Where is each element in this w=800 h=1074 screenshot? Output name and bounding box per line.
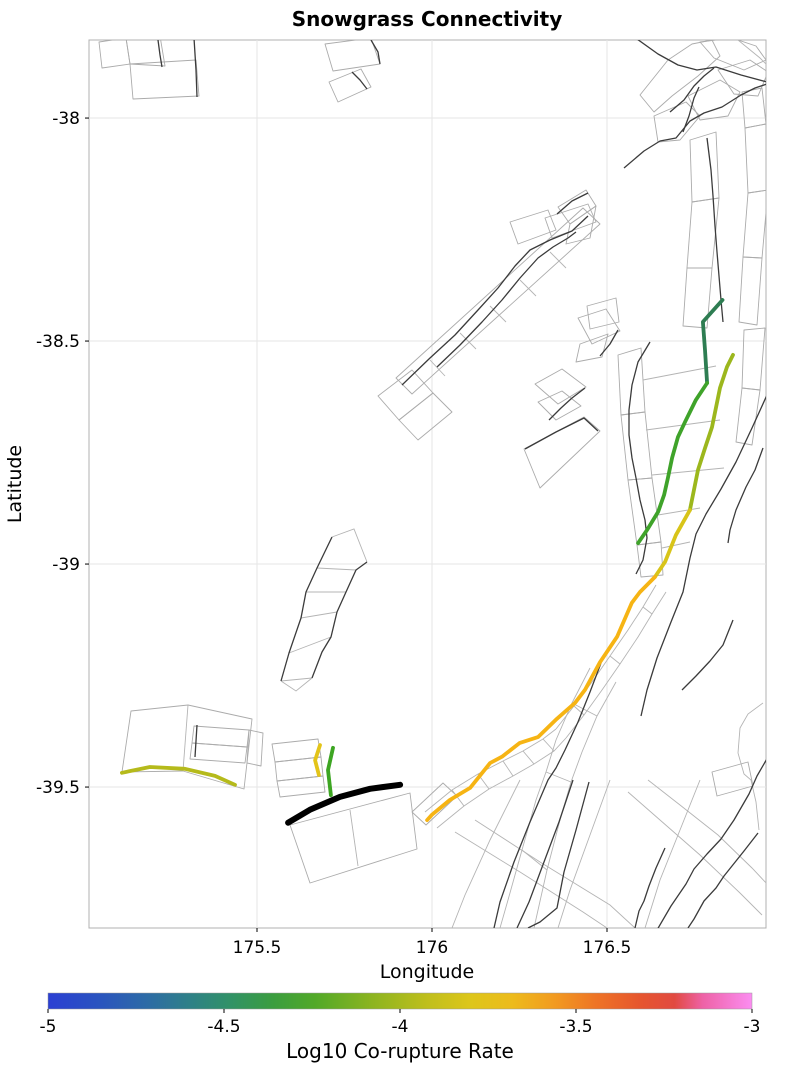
fault-patch-line bbox=[183, 705, 188, 771]
fault-patch-outline bbox=[190, 743, 247, 763]
fault-trace bbox=[624, 84, 767, 168]
fault-patch-line bbox=[301, 612, 337, 618]
rupture-segment-2a bbox=[690, 355, 733, 510]
snowgrass-fault-highlight bbox=[288, 785, 400, 823]
fault-patch-outline bbox=[576, 334, 608, 362]
fault-patch-outline bbox=[399, 393, 452, 440]
fault-patch-line bbox=[643, 607, 652, 614]
fault-trace bbox=[688, 833, 758, 928]
fault-trace bbox=[682, 620, 733, 690]
fault-trace bbox=[437, 232, 576, 367]
fault-trace bbox=[352, 72, 367, 89]
plot-area bbox=[89, 40, 766, 928]
fault-patch-outline bbox=[718, 60, 768, 96]
fault-patch-outline bbox=[535, 369, 586, 404]
fault-trace bbox=[195, 725, 197, 757]
fault-patch-outline bbox=[277, 776, 325, 797]
colorbar-gradient bbox=[48, 993, 752, 1009]
colorbar-tick-label: -4.5 bbox=[207, 1017, 240, 1037]
fault-patch-line bbox=[455, 832, 607, 928]
fault-patch-line bbox=[662, 542, 690, 548]
fault-trace bbox=[635, 848, 665, 928]
fault-patch-line bbox=[500, 668, 590, 928]
fault-patch-outline bbox=[325, 38, 380, 71]
fault-patch-line bbox=[738, 703, 763, 830]
fault-patch-outline bbox=[396, 208, 600, 394]
fault-patch-line bbox=[350, 810, 358, 866]
rupture-segment-2c bbox=[427, 577, 655, 820]
fault-patch-line bbox=[289, 637, 331, 653]
fault-patch-line bbox=[534, 682, 616, 928]
y-tick-label: -38.5 bbox=[36, 332, 80, 352]
x-tick-label: 175.5 bbox=[233, 938, 282, 958]
fault-patch-line bbox=[610, 656, 620, 664]
fault-patch-outline bbox=[524, 417, 600, 488]
fault-patch-outline bbox=[739, 257, 762, 325]
fault-trace bbox=[683, 87, 699, 132]
fault-patch-line bbox=[281, 678, 312, 681]
axis-ticks: 175.5176176.5-38-38.5-39-39.5 bbox=[36, 109, 631, 958]
colorbar-tick-label: -4 bbox=[392, 1017, 409, 1037]
colorbar-tick-label: -5 bbox=[40, 1017, 57, 1037]
colorbar-label: Log10 Co-rupture Rate bbox=[286, 1039, 514, 1063]
fault-map-layers bbox=[99, 36, 768, 930]
x-axis-label: Longitude bbox=[380, 961, 475, 983]
gridlines bbox=[89, 40, 766, 928]
fault-trace bbox=[728, 448, 763, 543]
colorbar-tick-label: -3.5 bbox=[559, 1017, 592, 1037]
fault-patch-outline bbox=[621, 412, 652, 480]
rupture-segment-4 bbox=[315, 745, 320, 775]
fault-patch-line bbox=[332, 529, 367, 562]
fault-trace bbox=[312, 562, 367, 678]
fault-patch-outline bbox=[690, 132, 719, 202]
fault-patch-line bbox=[490, 306, 506, 322]
y-tick-label: -38 bbox=[52, 109, 80, 129]
fault-patch-outline bbox=[745, 124, 768, 193]
y-tick-label: -39 bbox=[52, 555, 80, 575]
fault-patch-line bbox=[648, 780, 768, 885]
colorbar: -5-4.5-4-3.5-3 Log10 Co-rupture Rate bbox=[40, 993, 761, 1063]
fault-patch-outline bbox=[742, 328, 765, 390]
fault-trace bbox=[525, 418, 598, 449]
x-tick-label: 176.5 bbox=[583, 938, 632, 958]
fault-patch-line bbox=[523, 751, 534, 764]
fault-patch-outline bbox=[742, 88, 766, 128]
fault-patch-line bbox=[503, 761, 513, 776]
fault-patch-outline bbox=[290, 793, 417, 883]
colorbar-ticks: -5-4.5-4-3.5-3 bbox=[40, 1009, 761, 1037]
fault-patch-outline bbox=[99, 38, 130, 68]
fault-patch-line bbox=[317, 568, 356, 570]
x-tick-label: 176 bbox=[416, 938, 448, 958]
fault-trace bbox=[557, 193, 588, 214]
colorbar-tick-label: -3 bbox=[744, 1017, 761, 1037]
fault-patch-line bbox=[475, 820, 635, 928]
rupture-segment-1b bbox=[638, 383, 707, 543]
fault-patch-line bbox=[550, 252, 566, 268]
fault-trace bbox=[402, 216, 588, 385]
fault-patch-outline bbox=[247, 730, 263, 766]
fault-patch-outline bbox=[378, 370, 433, 420]
figure-title: Snowgrass Connectivity bbox=[292, 7, 563, 31]
fault-patch-line bbox=[452, 780, 520, 928]
fault-trace bbox=[549, 388, 585, 420]
fault-patch-outline bbox=[272, 739, 321, 762]
fault-patch-outline bbox=[712, 762, 753, 796]
y-tick-label: -39.5 bbox=[36, 778, 80, 798]
fault-patch-outline bbox=[743, 190, 768, 258]
snowgrass-connectivity-figure: Snowgrass Connectivity 175.5176176.5-38-… bbox=[0, 0, 800, 1074]
fault-trace bbox=[600, 330, 618, 356]
rupture-segment-5 bbox=[328, 748, 333, 795]
fault-patch-line bbox=[645, 780, 700, 928]
fault-patch-line bbox=[652, 468, 724, 475]
fault-patch-line bbox=[543, 739, 554, 751]
fault-trace bbox=[281, 537, 332, 681]
rupture-segment-6 bbox=[122, 767, 235, 785]
y-axis-label: Latitude bbox=[4, 445, 26, 523]
fault-patch-line bbox=[658, 508, 700, 515]
